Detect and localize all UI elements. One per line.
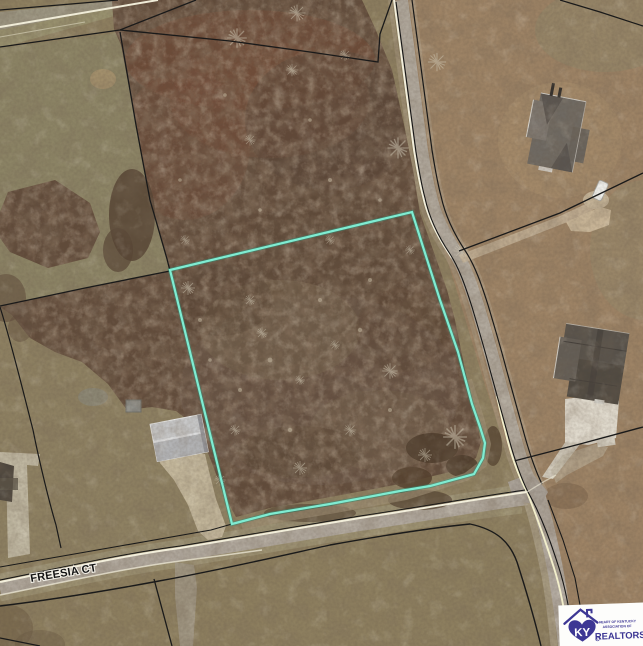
svg-text:KY: KY	[574, 627, 591, 640]
svg-text:REALTORS: REALTORS	[595, 629, 643, 642]
